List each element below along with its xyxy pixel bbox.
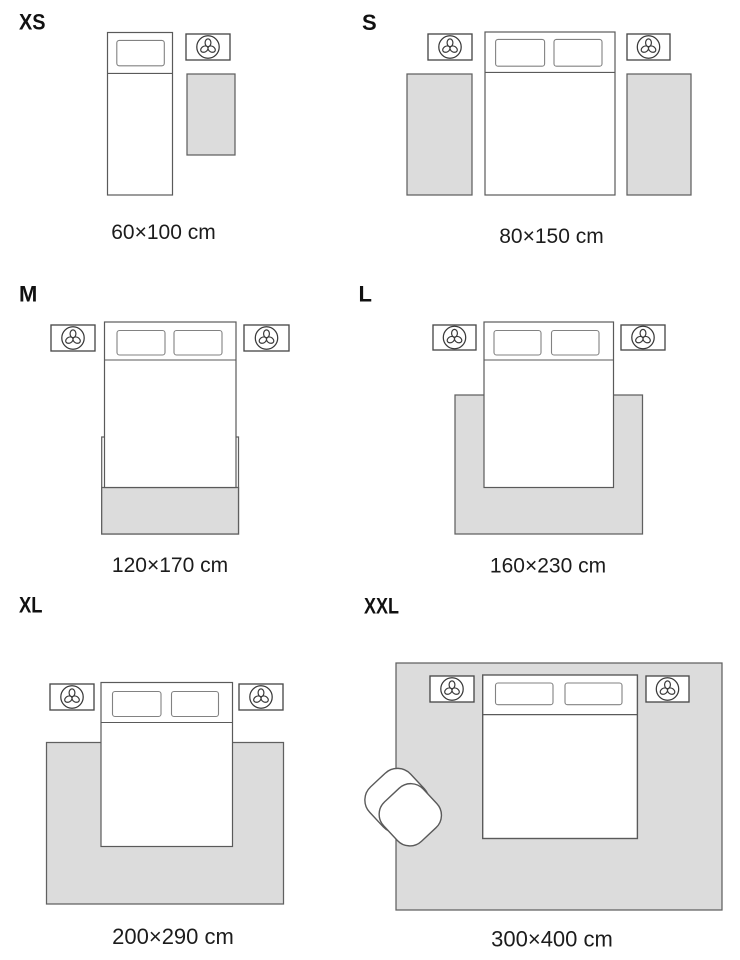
svg-text:S: S	[362, 10, 377, 35]
svg-text:60×100 cm: 60×100 cm	[111, 221, 216, 244]
svg-text:XXL: XXL	[364, 594, 399, 619]
svg-text:L: L	[359, 282, 372, 307]
svg-text:300×400 cm: 300×400 cm	[491, 927, 613, 952]
svg-text:120×170 cm: 120×170 cm	[112, 554, 228, 577]
svg-text:200×290 cm: 200×290 cm	[112, 924, 234, 949]
svg-text:80×150 cm: 80×150 cm	[499, 225, 604, 248]
svg-text:160×230 cm: 160×230 cm	[490, 555, 606, 578]
svg-text:XL: XL	[19, 593, 43, 618]
svg-text:M: M	[19, 282, 37, 307]
svg-text:XS: XS	[19, 10, 46, 35]
